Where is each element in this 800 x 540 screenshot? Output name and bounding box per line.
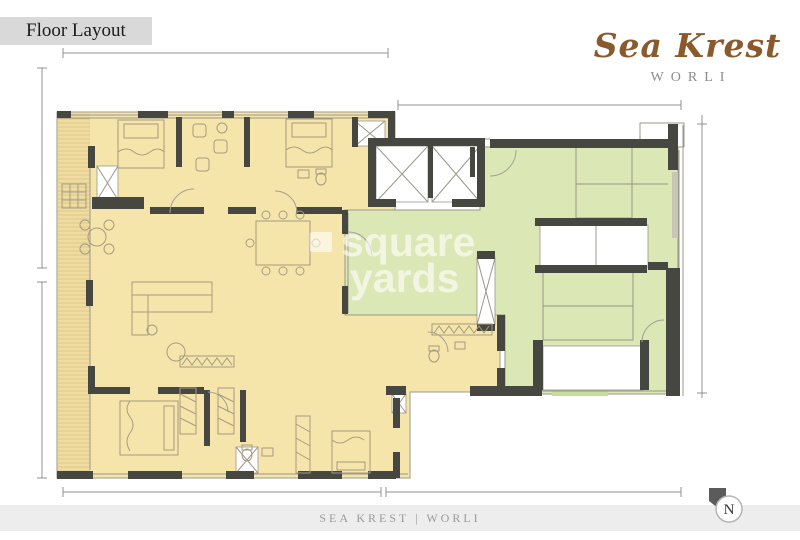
lower-landing xyxy=(543,346,643,390)
north-indicator: N xyxy=(703,484,755,540)
window-strip-right xyxy=(672,172,678,238)
watermark: square yards xyxy=(310,224,475,296)
north-letter: N xyxy=(724,502,735,518)
footer-caption: SEA KREST | WORLI xyxy=(319,511,480,526)
watermark-square-icon xyxy=(310,232,332,252)
watermark-line2: yards xyxy=(350,260,475,296)
mid-landing xyxy=(540,225,648,267)
floor-layout-label: Floor Layout xyxy=(26,20,126,42)
brand-name: Sea Krest xyxy=(575,28,800,64)
floor-layout-badge: Floor Layout xyxy=(0,17,152,45)
brand-location: WORLI xyxy=(575,70,800,86)
floor-plan-page: Floor Layout Sea Krest WORLI square yard… xyxy=(0,0,800,540)
brand-block: Sea Krest WORLI xyxy=(575,28,800,86)
balcony-deck-hatch xyxy=(58,113,90,477)
footer-bar: SEA KREST | WORLI xyxy=(0,505,800,531)
